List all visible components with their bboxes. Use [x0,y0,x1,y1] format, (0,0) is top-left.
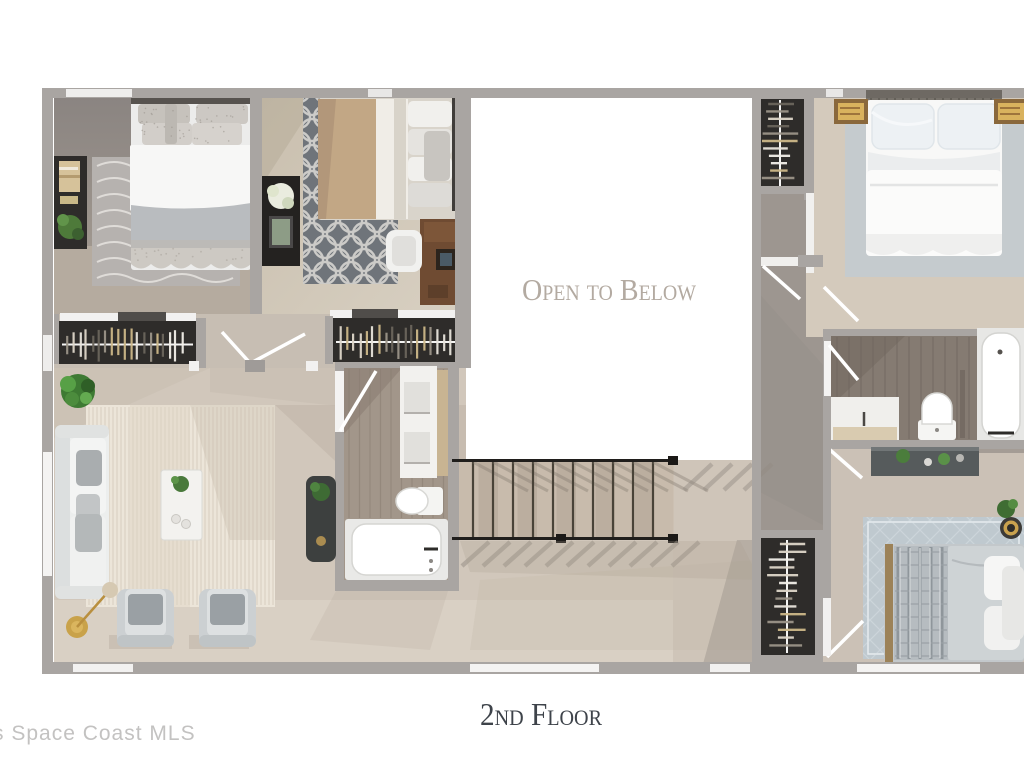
svg-text:2nd Floor: 2nd Floor [480,696,602,732]
svg-text:Open to Below: Open to Below [522,272,696,307]
svg-text:s Space Coast MLS: s Space Coast MLS [0,722,196,745]
